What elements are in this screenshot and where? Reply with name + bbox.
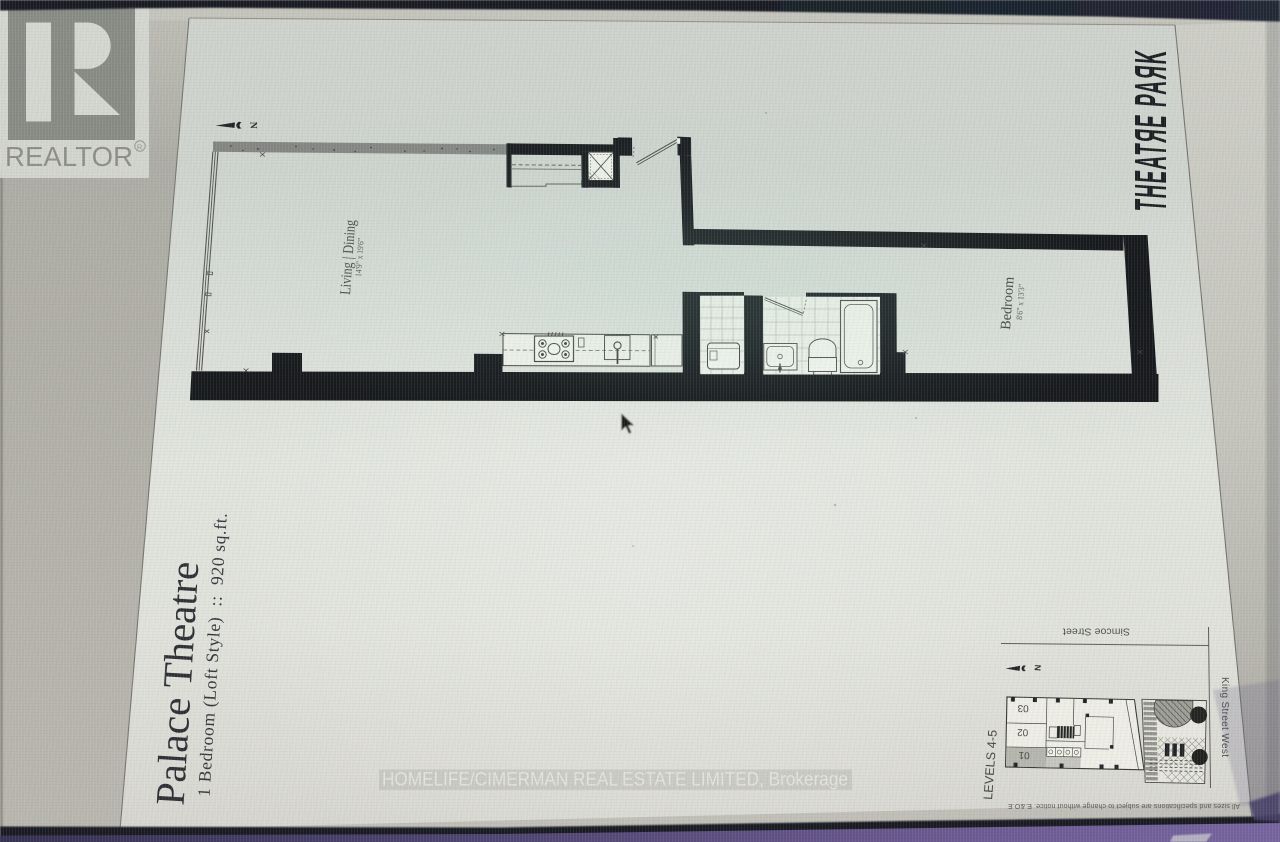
svg-text:REALTOR: REALTOR [5,141,133,172]
svg-text:03: 03 [1017,702,1029,713]
svg-text:HOMELIFE/CIMERMAN REAL ESTATE: HOMELIFE/CIMERMAN REAL ESTATE LIMITED, B… [382,770,848,791]
svg-text:N: N [1033,664,1043,671]
svg-text:All sizes and specifications a: All sizes and specifications are subject… [1008,802,1240,809]
svg-text:02: 02 [1017,726,1029,737]
svg-text:Simcoe Street: Simcoe Street [1063,626,1130,638]
svg-text:R: R [137,143,143,152]
svg-text:01: 01 [1018,749,1030,760]
svg-text:THEATЯE PAЯK: THEATЯE PAЯK [1125,47,1176,213]
svg-text:N: N [248,122,258,129]
